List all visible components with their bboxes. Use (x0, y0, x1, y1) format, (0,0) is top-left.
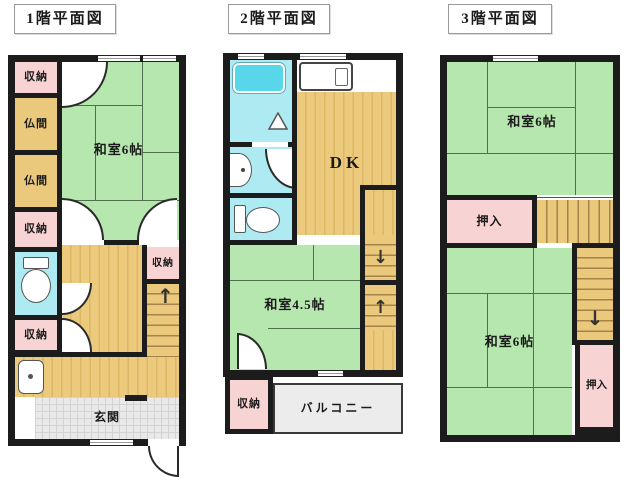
room-washroom-2f (230, 147, 292, 193)
room-label: 仏間 (24, 175, 48, 187)
wall-segment (104, 240, 139, 245)
washbasin-icon (230, 153, 252, 187)
wall-segment (572, 248, 577, 340)
floor1-plan: 収納 仏間 仏間 収納 収納 和室6帖 (8, 55, 186, 446)
floor3-title: 3階平面図 (461, 11, 539, 28)
wall-segment (575, 427, 613, 435)
room-label: 仏間 (24, 118, 48, 130)
floor2-title-box: 2階平面図 (228, 4, 330, 34)
room-genkan: 玄関 (35, 397, 179, 439)
wall-segment (575, 345, 580, 427)
wall-segment (440, 55, 447, 442)
room-label: 和室6帖 (66, 143, 171, 157)
room-divider-line (537, 197, 613, 198)
floor1-title-box: 1階平面図 (14, 4, 116, 34)
floor1-title: 1階平面図 (26, 11, 104, 28)
bathtub-icon (233, 63, 285, 93)
wall-segment (447, 195, 532, 200)
room-oshiire-3f-bottom: 押入 (580, 345, 613, 427)
wall-segment (230, 240, 297, 245)
wall-segment (15, 247, 57, 252)
tatami-line (487, 107, 576, 108)
washbasin-drain (241, 168, 245, 172)
tatami-line (447, 293, 572, 294)
room-label: バルコニー (301, 402, 376, 415)
room-label: 玄関 (94, 411, 120, 424)
room-label: 押入 (476, 215, 502, 228)
wall-segment (223, 53, 230, 377)
entry-side-space (15, 397, 35, 439)
wall-segment (532, 195, 537, 243)
wall-segment (15, 352, 142, 357)
wall-segment (343, 370, 403, 377)
wall-segment (15, 93, 57, 98)
floor2-plan: DK ↓ ↑ 和室4.5帖 (223, 53, 403, 434)
window-icon (90, 439, 133, 446)
wall-segment (230, 142, 252, 147)
tatami-line (447, 387, 572, 388)
room-label: 収納 (24, 71, 48, 83)
stairs-up-2f: ↑ (365, 285, 396, 330)
toilet-tank (23, 257, 49, 269)
window-icon (238, 53, 264, 60)
room-closet-2f: 収納 (225, 375, 273, 434)
wall-segment (230, 193, 292, 198)
wall-segment (142, 245, 147, 357)
tatami-line (313, 245, 314, 280)
room-toilet-2f (230, 198, 292, 240)
wall-segment (572, 243, 613, 248)
wall-segment (440, 435, 620, 442)
room-label: 和室4.5帖 (235, 298, 355, 312)
sink-drain (28, 374, 33, 379)
stairs-down-arrow-icon: ↓ (373, 249, 388, 267)
wall-segment (15, 207, 57, 212)
wall-segment (292, 60, 297, 245)
room-label: 収納 (152, 258, 174, 269)
toilet-icon (19, 257, 53, 307)
room-closet-1f-mid: 収納 (15, 212, 57, 247)
room-label: 押入 (586, 380, 607, 392)
toilet-tank (234, 205, 246, 233)
window-icon (300, 53, 346, 60)
room-closet-1f-right: 収納 (147, 247, 179, 279)
room-bathroom-2f (230, 60, 292, 142)
wall-segment (613, 55, 620, 442)
room-label: 収納 (237, 398, 261, 410)
room-butsuma-2: 仏間 (15, 155, 57, 207)
floor3-title-box: 3階平面図 (448, 4, 552, 34)
kitchen-sink (335, 68, 348, 86)
window-icon (143, 55, 176, 62)
window-icon (98, 55, 140, 62)
wall-segment (8, 55, 15, 446)
stairs-down-arrow-icon: ↓ (587, 308, 604, 328)
room-butsuma-1: 仏間 (15, 98, 57, 150)
room-balcony: バルコニー (273, 383, 403, 434)
stairs-down-2f: ↓ (365, 235, 396, 280)
kitchen-strip-2f (297, 60, 396, 92)
room-label: 収納 (24, 329, 48, 341)
floorplan-stage: 1階平面図 2階平面図 3階平面図 収納 仏間 仏間 収納 収納 (0, 0, 640, 480)
room-label: 和室6帖 (452, 335, 567, 349)
room-label: 和室6帖 (473, 115, 591, 129)
floor3-plan: 和室6帖 押入 ↓ 和室6帖 押入 (440, 55, 620, 442)
stairs-up-arrow-icon: ↑ (157, 286, 174, 306)
room-closet-1f-top: 収納 (15, 62, 57, 93)
tatami-line (447, 153, 613, 154)
window-icon (318, 370, 343, 377)
room-label: DK (330, 154, 364, 173)
stair-landing-lower-2f (365, 330, 396, 370)
tatami-line (230, 280, 360, 281)
tatami-line (268, 328, 360, 329)
stair-landing-upper-2f (365, 190, 396, 235)
stairs-up-1f: ↑ (147, 284, 179, 357)
floor2-title: 2階平面図 (240, 11, 318, 28)
wall-segment (360, 280, 403, 285)
toilet-bowl (246, 207, 280, 233)
room-oshiire-3f-top: 押入 (447, 200, 532, 243)
toilet-bowl (21, 269, 51, 303)
stairs-landing-3f (537, 200, 613, 243)
wall-segment (15, 315, 57, 320)
kitchen-counter-icon (299, 62, 353, 91)
room-label: 収納 (24, 223, 48, 235)
tatami-line (142, 62, 143, 200)
room-closet-1f-low: 収納 (15, 320, 57, 350)
sink-icon (18, 360, 44, 394)
wall-segment (15, 150, 57, 155)
stairs-down-3f: ↓ (577, 248, 613, 340)
stairs-up-arrow-icon: ↑ (373, 299, 388, 317)
room-toilet-1f (15, 252, 57, 315)
wall-segment (179, 55, 186, 446)
wall-segment (147, 279, 179, 284)
wall-segment (57, 62, 62, 352)
wall-segment (447, 243, 537, 248)
wall-segment (133, 439, 148, 446)
wall-segment (288, 142, 292, 147)
wall-segment (396, 53, 403, 377)
wall-segment (8, 439, 90, 446)
wall-segment (360, 185, 403, 190)
entrance-door-arc (148, 446, 179, 477)
wall-segment (125, 395, 147, 401)
window-icon (493, 55, 538, 62)
triangle-door-icon (268, 112, 288, 130)
